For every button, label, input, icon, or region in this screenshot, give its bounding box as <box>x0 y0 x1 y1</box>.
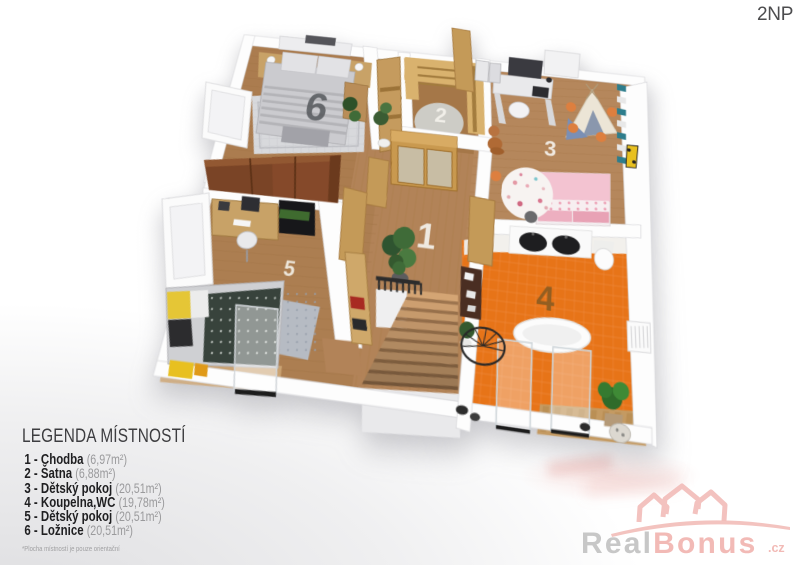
svg-text:RealBonus: RealBonus <box>581 527 758 560</box>
svg-text:.cz: .cz <box>768 541 785 555</box>
